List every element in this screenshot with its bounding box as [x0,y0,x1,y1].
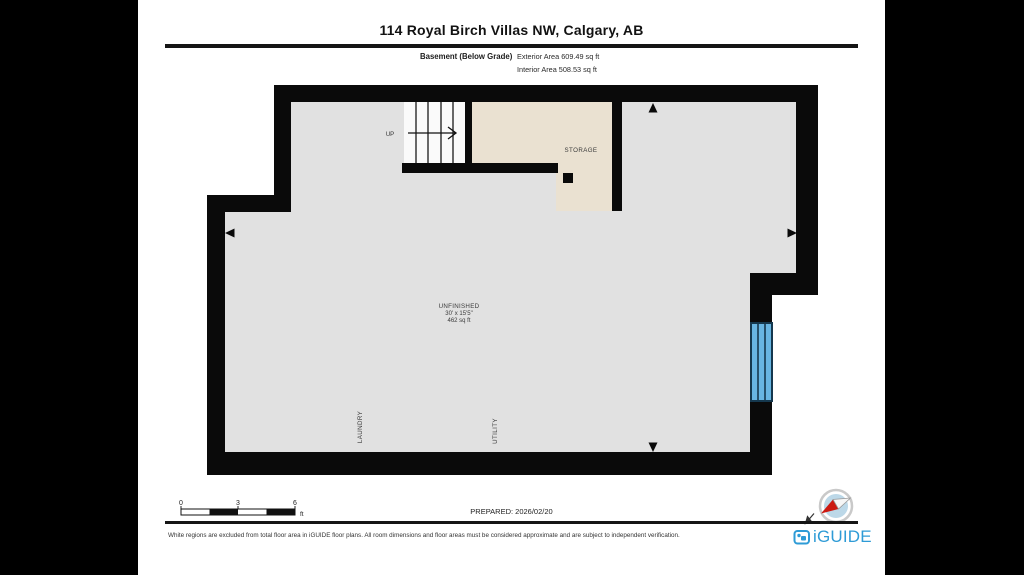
wall-storage-right [612,100,622,211]
unfinished-room-label: UNFINISHED [439,303,480,310]
floor-name-label: Basement (Below Grade) [420,52,512,61]
door-post [563,173,573,183]
wall-top [274,85,818,102]
wall-under-stairs [402,163,558,173]
utility-room-label: UTILITY [492,418,499,444]
prepared-date: PREPARED: 2026/02/20 [138,507,885,516]
floorplan-drawing: UP STORAGE [190,80,830,480]
wall-below-window [750,401,772,475]
iguide-logo: iGUIDE [793,527,872,547]
storage-room-label: STORAGE [565,147,598,154]
title-divider [165,44,858,48]
laundry-room-label: LAUNDRY [357,411,364,443]
stairs-area [404,100,465,164]
page-title: 114 Royal Birch Villas NW, Calgary, AB [138,22,885,38]
footer-disclaimer: White regions are excluded from total fl… [168,532,680,539]
wall-left-lower [207,195,225,475]
interior-area-value: Interior Area 508.53 sq ft [517,65,597,74]
scale-tick-3: 3 [236,500,240,507]
window [751,323,772,401]
wall-above-window [750,273,772,323]
unfinished-room-area: 462 sq ft [447,318,470,324]
wall-right-upper [796,85,818,295]
footer-divider [165,521,858,524]
wall-left-upper [274,85,291,212]
scale-tick-0: 0 [179,500,183,507]
scale-tick-6: 6 [293,500,297,507]
wall-stairs-storage [465,100,472,164]
exterior-area-value: Exterior Area 609.49 sq ft [517,52,599,61]
floorplan-page-background: 114 Royal Birch Villas NW, Calgary, AB B… [0,0,1024,575]
stairs-up-label: UP [386,132,394,138]
iguide-logo-icon [793,528,811,546]
iguide-logo-text: iGUIDE [813,527,872,547]
wall-bottom [207,452,772,475]
unfinished-room-dimensions: 30' x 15'5" [445,311,472,317]
